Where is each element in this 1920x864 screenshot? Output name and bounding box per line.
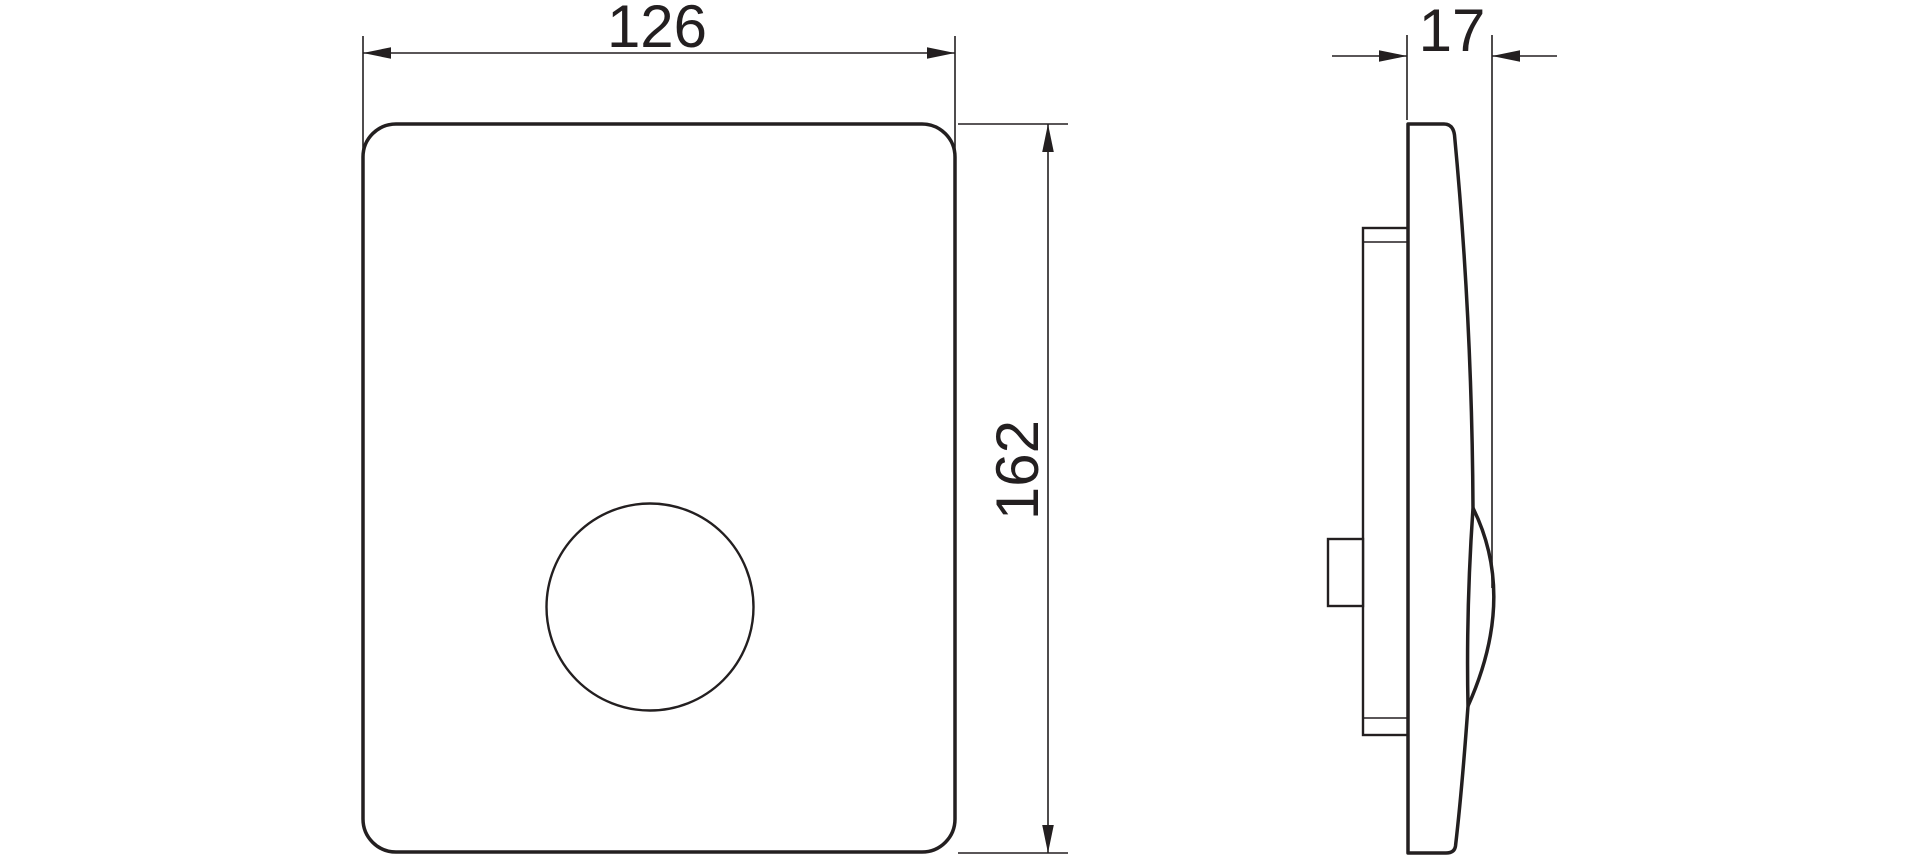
flush-plate-front-outline: [363, 124, 955, 852]
depth-dimension-label: 17: [1419, 0, 1486, 64]
drawing-canvas: 126 162: [0, 0, 1920, 864]
front-view: 126 162: [363, 0, 1068, 853]
technical-drawing-svg: 126 162: [0, 0, 1920, 864]
mounting-frame-outline: [1363, 228, 1408, 735]
flush-button-circle: [547, 504, 754, 711]
actuator-knob-profile: [1328, 539, 1363, 606]
depth-arrowhead-left: [1379, 50, 1407, 62]
width-dimension-label: 126: [607, 0, 707, 60]
height-dimension: 162: [958, 124, 1068, 853]
width-arrowhead-left: [363, 47, 391, 59]
flush-plate-side-profile: [1408, 124, 1473, 853]
side-view: 17: [1328, 0, 1557, 853]
width-arrowhead-right: [927, 47, 955, 59]
mounting-frame-profile: [1363, 228, 1408, 735]
height-dimension-label: 162: [984, 420, 1051, 520]
height-arrowhead-bottom: [1042, 825, 1054, 853]
depth-arrowhead-right: [1492, 50, 1520, 62]
height-arrowhead-top: [1042, 124, 1054, 152]
